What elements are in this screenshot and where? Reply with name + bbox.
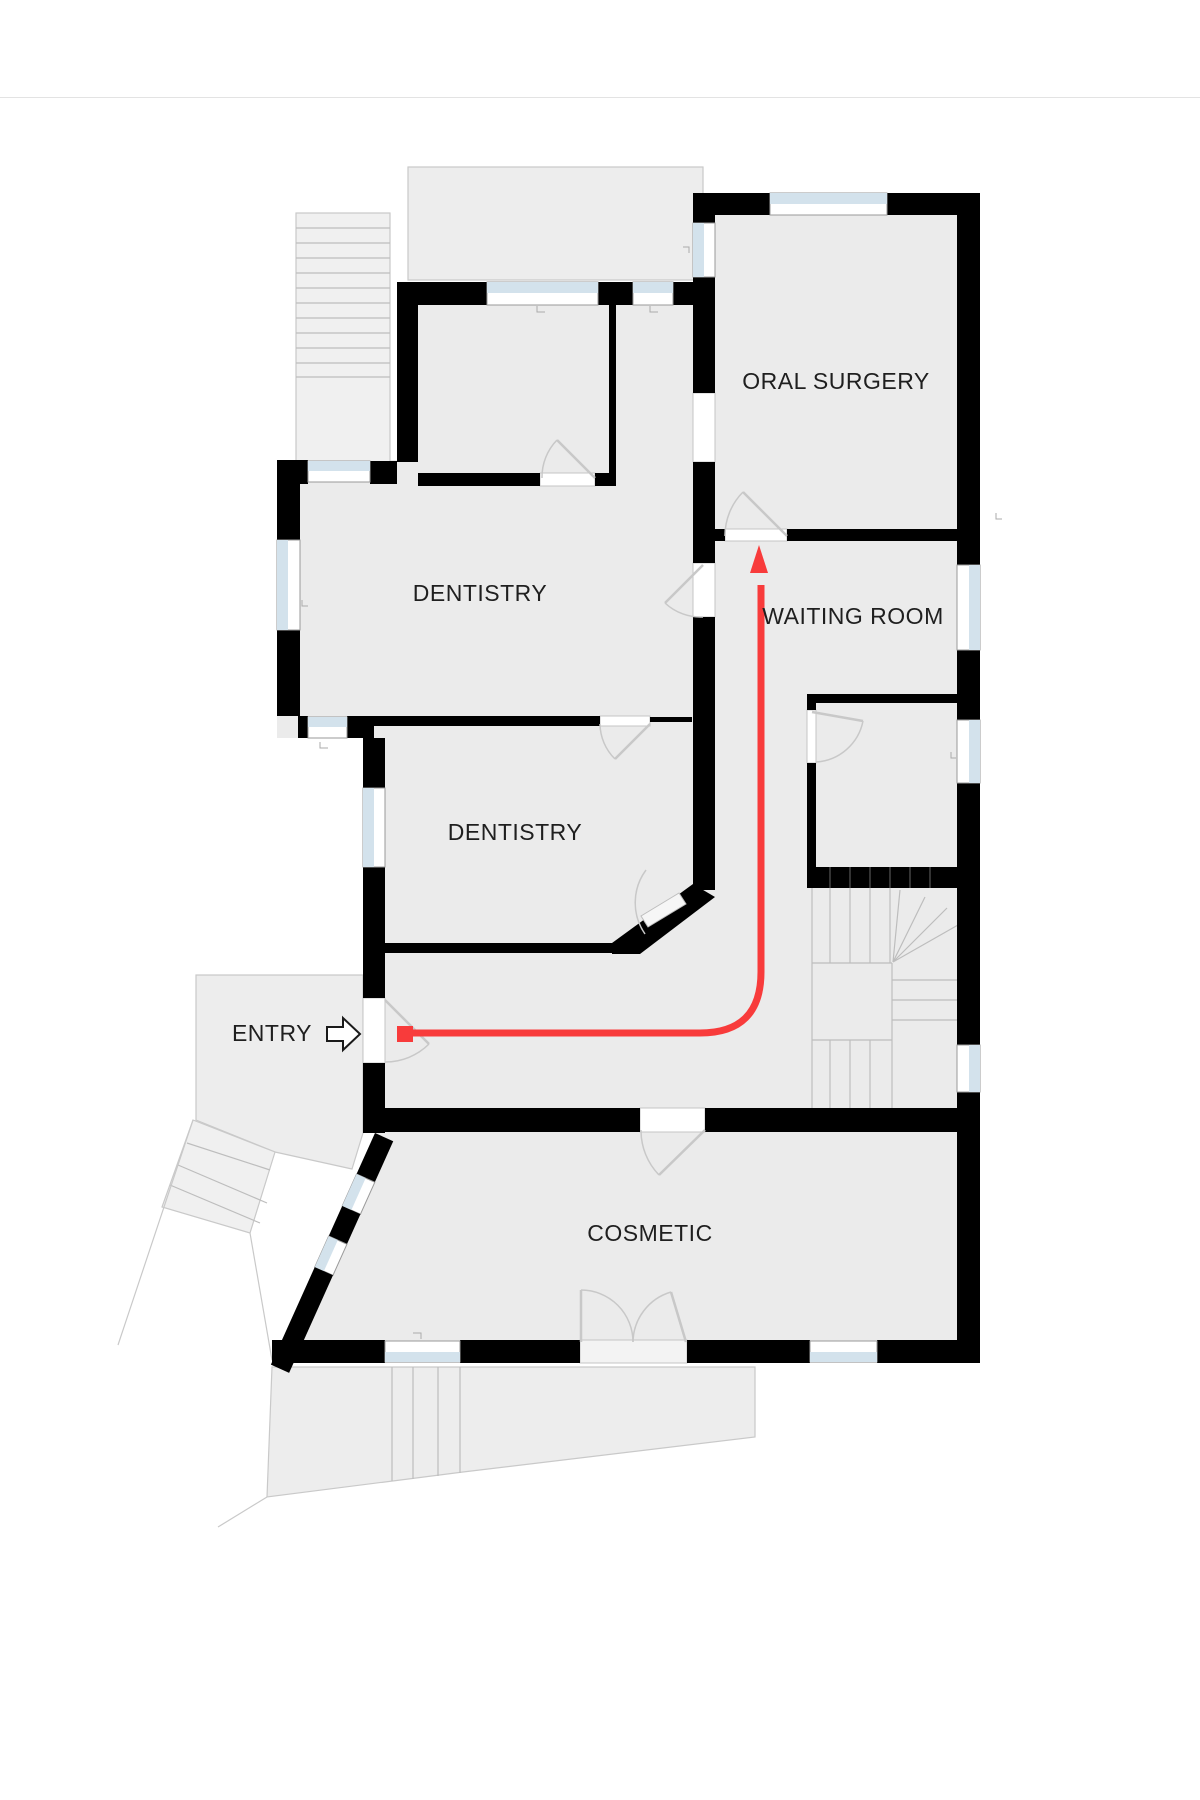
room-label-entry: ENTRY	[232, 1020, 312, 1046]
window	[308, 461, 370, 482]
opening-oral-surgery-west	[693, 393, 715, 462]
staircase-top-left	[296, 213, 390, 462]
upper-room-door-gap	[540, 473, 595, 486]
window	[810, 1341, 877, 1362]
cosmetic-double-door-gap	[580, 1340, 687, 1363]
room-label-dentistry-upper: DENTISTRY	[413, 580, 547, 606]
window	[957, 1045, 980, 1092]
window	[487, 282, 598, 305]
outdoor-steps-south-west	[118, 1120, 275, 1360]
small-room-door-gap	[807, 710, 816, 763]
window	[957, 565, 980, 650]
window	[770, 193, 887, 215]
window	[633, 282, 673, 305]
room-label-waiting-room: WAITING ROOM	[762, 603, 943, 629]
route-start-marker	[397, 1026, 413, 1042]
floor-plan-page: ORAL SURGERY WAITING ROOM DENTISTRY DENT…	[0, 0, 1200, 1800]
cosmetic-door-gap	[640, 1108, 705, 1132]
balcony-top	[408, 167, 703, 280]
window	[385, 1341, 460, 1362]
room-label-dentistry-lower: DENTISTRY	[448, 819, 582, 845]
window	[363, 788, 385, 867]
window	[277, 540, 300, 630]
room-label-cosmetic: COSMETIC	[587, 1220, 712, 1246]
room-label-oral-surgery: ORAL SURGERY	[742, 368, 930, 394]
window	[957, 720, 980, 783]
entry-door-gap	[363, 998, 385, 1063]
terrace-bottom	[218, 1367, 755, 1527]
window	[693, 223, 715, 277]
dentistry-connecting-door-gap	[600, 716, 650, 726]
window	[308, 717, 347, 738]
floor-plan-svg: ORAL SURGERY WAITING ROOM DENTISTRY DENT…	[0, 0, 1200, 1800]
oral-surgery-door-gap	[725, 529, 787, 541]
